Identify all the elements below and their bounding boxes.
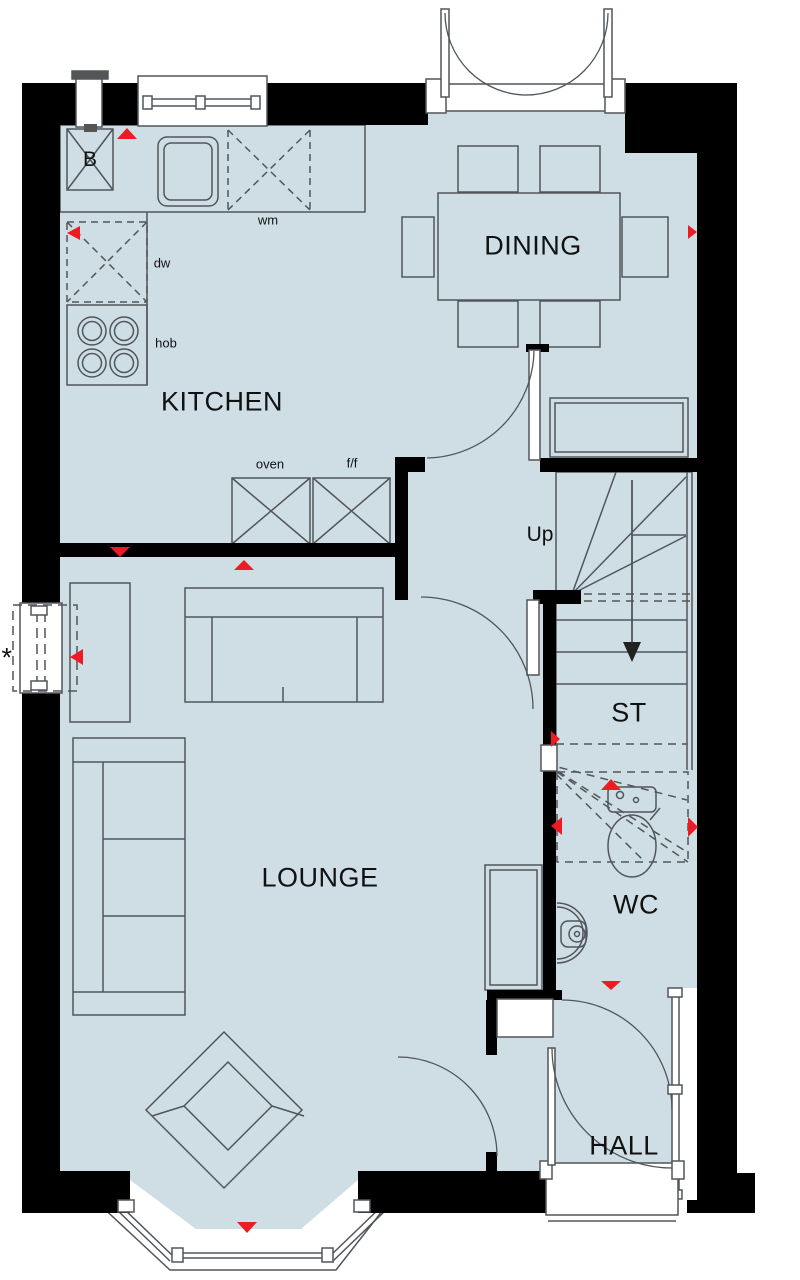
room-label-lounge: LOUNGE xyxy=(261,863,378,894)
room-label-dining: DINING xyxy=(484,231,582,262)
stairs-up-label: Up xyxy=(527,523,554,547)
fridge-freezer-label: f/f xyxy=(347,456,358,471)
kitchen-window xyxy=(138,76,267,126)
optional-window-marker: * xyxy=(1,643,12,674)
hob-label: hob xyxy=(155,336,177,351)
room-label-wc: WC xyxy=(613,890,659,921)
dishwasher-label: dw xyxy=(154,256,171,271)
floor-plan: KITCHEN DINING LOUNGE HALL WC ST Up B wm… xyxy=(0,0,800,1280)
floor-plan-svg xyxy=(0,0,800,1280)
cupboard-door xyxy=(541,745,557,771)
flue xyxy=(72,71,108,132)
room-label-storage: ST xyxy=(611,698,647,729)
washing-machine-label: wm xyxy=(258,213,278,228)
oven-label: oven xyxy=(256,457,284,472)
boiler-label: B xyxy=(83,148,97,172)
french-doors xyxy=(426,9,625,113)
room-label-hall: HALL xyxy=(589,1131,659,1162)
room-label-kitchen: KITCHEN xyxy=(161,387,283,418)
